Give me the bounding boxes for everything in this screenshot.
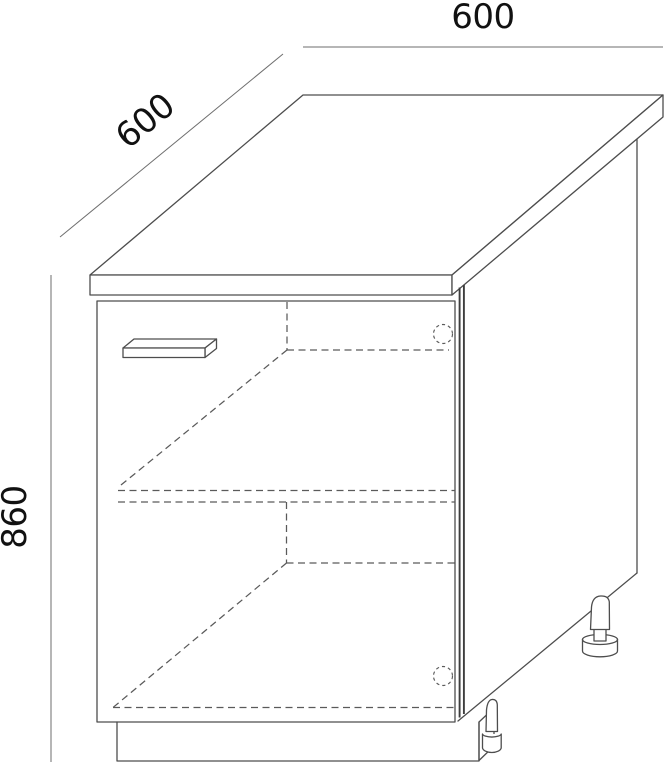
door-panel bbox=[97, 301, 455, 722]
width-dimension-label: 600 bbox=[451, 0, 514, 37]
plinth bbox=[117, 708, 494, 761]
door-handle bbox=[123, 339, 217, 358]
hinge-cup-hole-top bbox=[434, 325, 453, 344]
handle-top-face bbox=[123, 339, 217, 348]
plinth-front-face bbox=[117, 722, 479, 761]
rear-foot-stem bbox=[591, 596, 610, 630]
height-dimension-label: 860 bbox=[0, 485, 35, 548]
front-foot-stem bbox=[486, 699, 498, 731]
handle-front-face bbox=[123, 348, 205, 358]
rear-foot-neck bbox=[594, 630, 606, 642]
rear-foot-base-body bbox=[583, 640, 618, 657]
countertop-front-edge bbox=[90, 275, 452, 295]
bottom-panel-left-edge-hidden bbox=[113, 563, 287, 708]
hinge-cup-hole-bottom bbox=[434, 667, 453, 686]
interior-hidden-lines bbox=[113, 302, 455, 708]
adjustable-foot-rear bbox=[583, 596, 618, 657]
shelf-left-edge-hidden bbox=[119, 350, 288, 487]
cabinet-technical-drawing: 600 600 860 bbox=[0, 0, 665, 768]
countertop bbox=[90, 95, 663, 295]
